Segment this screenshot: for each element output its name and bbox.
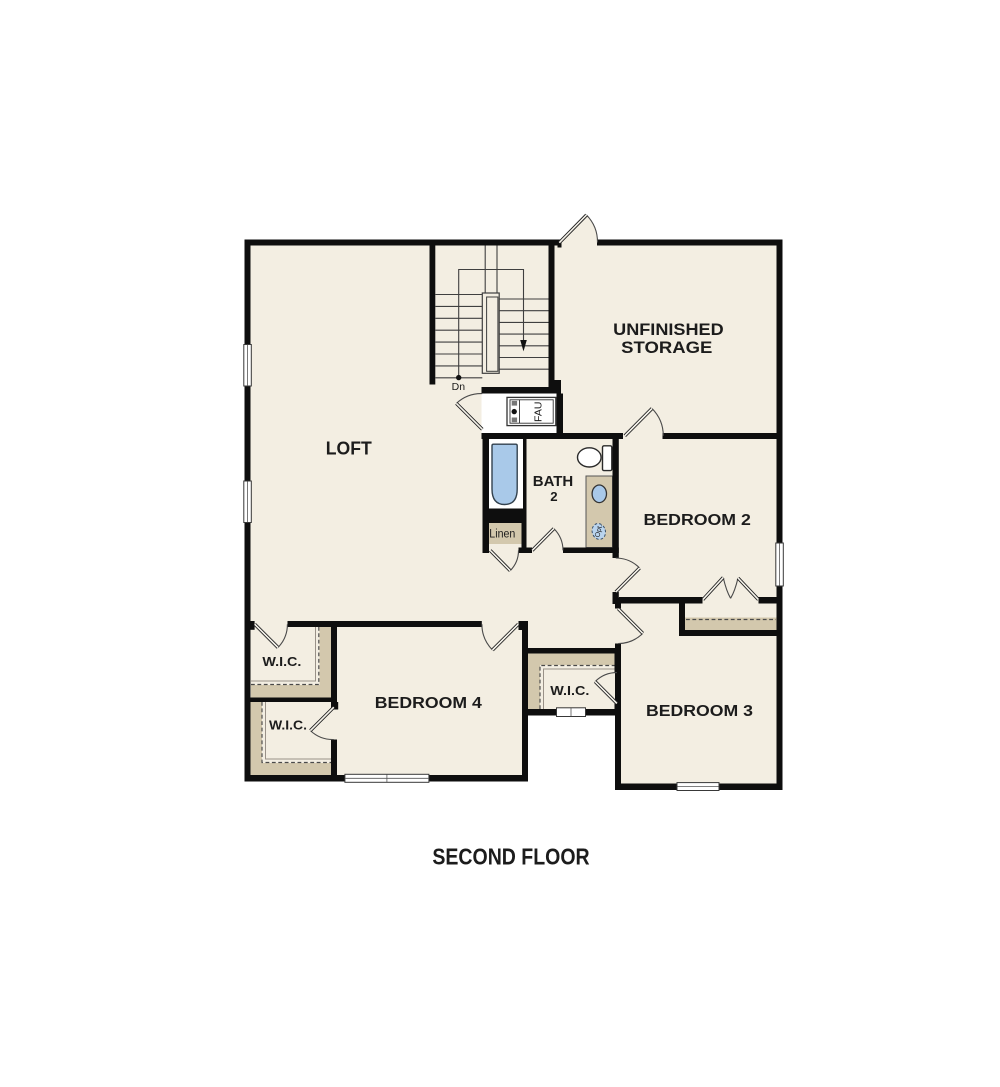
svg-text:W.I.C.: W.I.C. <box>550 683 589 698</box>
svg-text:W.I.C.: W.I.C. <box>269 718 307 733</box>
svg-text:BATH: BATH <box>533 474 574 490</box>
svg-text:STORAGE: STORAGE <box>621 339 712 357</box>
svg-text:Dn: Dn <box>452 381 466 393</box>
svg-text:BEDROOM 4: BEDROOM 4 <box>375 695 482 712</box>
svg-text:2: 2 <box>550 489 557 504</box>
svg-text:SECOND FLOOR: SECOND FLOOR <box>432 844 589 870</box>
svg-text:UNFINISHED: UNFINISHED <box>613 321 724 339</box>
svg-text:FAU: FAU <box>533 402 545 422</box>
svg-text:BEDROOM 2: BEDROOM 2 <box>644 512 751 529</box>
svg-text:W.I.C.: W.I.C. <box>262 654 301 669</box>
svg-text:Linen: Linen <box>489 529 515 541</box>
svg-text:BEDROOM 3: BEDROOM 3 <box>646 703 753 720</box>
svg-text:LOFT: LOFT <box>326 437 373 458</box>
